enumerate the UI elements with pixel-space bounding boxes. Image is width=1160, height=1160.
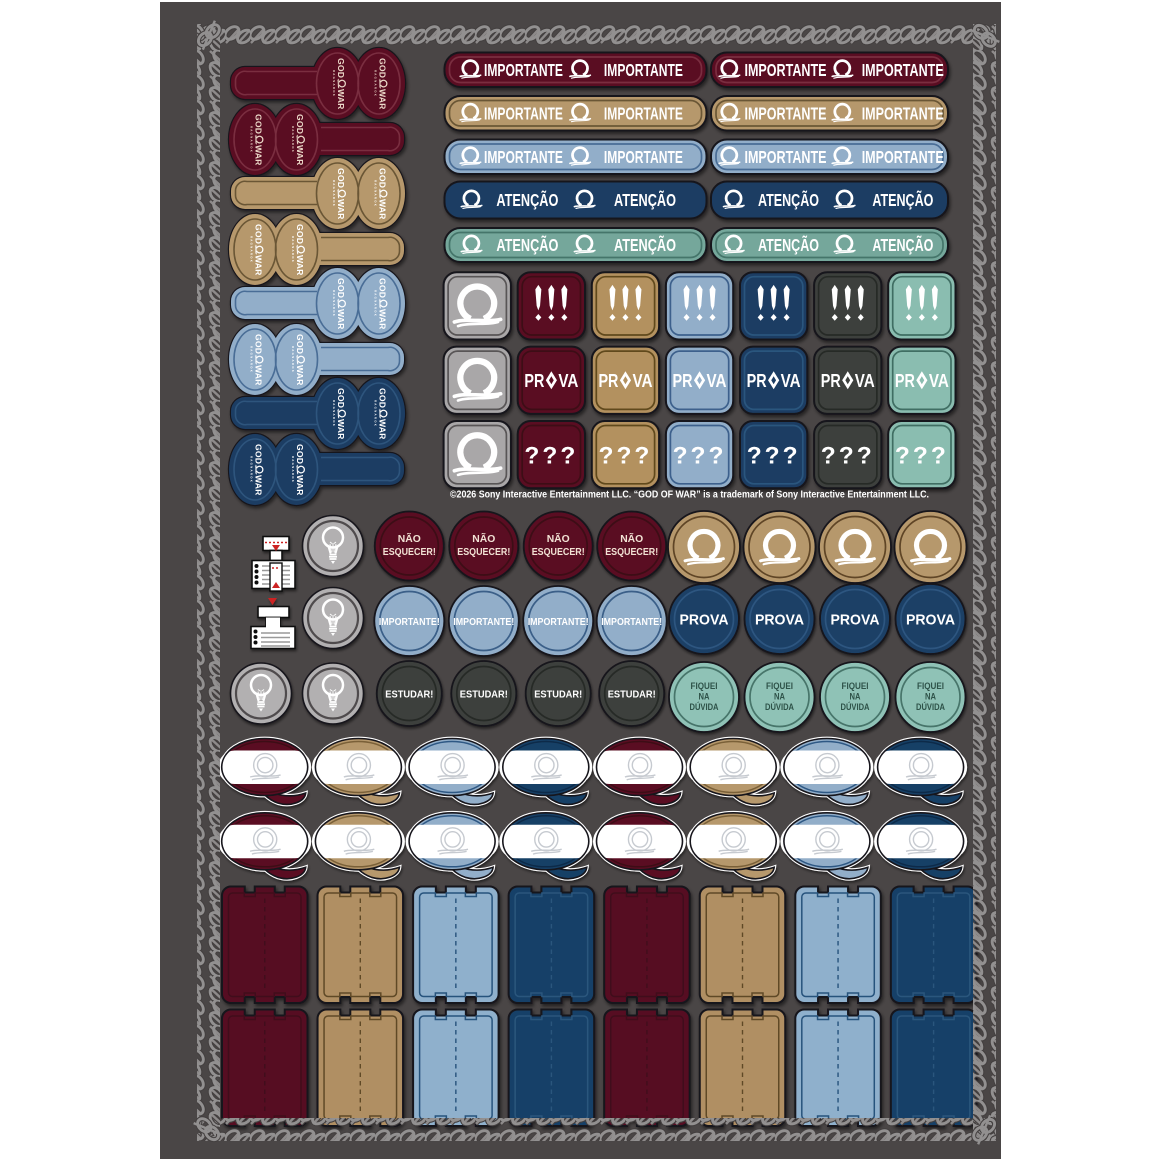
svg-text:ATENÇÃO: ATENÇÃO [614,234,676,255]
svg-text:ATENÇÃO: ATENÇÃO [496,189,558,210]
svg-text:IMPORTANTE!: IMPORTANTE! [528,616,589,628]
svg-text:IMPORTANTE: IMPORTANTE [862,103,944,123]
svg-text:ATENÇÃO: ATENÇÃO [496,234,558,255]
svg-text:VA: VA [781,371,801,391]
svg-text:PROVA: PROVA [831,612,880,629]
svg-text:ATENÇÃO: ATENÇÃO [614,189,676,210]
svg-text:ESQUECER!: ESQUECER! [532,546,585,558]
svg-text:PR: PR [895,371,915,391]
svg-text:???: ??? [895,443,949,470]
svg-text:DÚVIDA: DÚVIDA [841,701,870,712]
svg-text:IMPORTANTE: IMPORTANTE [484,103,563,123]
svg-text:NÃO: NÃO [620,532,643,545]
svg-text:IMPORTANTE: IMPORTANTE [484,60,563,80]
svg-text:NA: NA [699,692,710,702]
svg-text:???: ??? [598,443,652,470]
svg-text:IMPORTANTE: IMPORTANTE [604,103,683,123]
svg-text:FIQUEI: FIQUEI [917,681,944,691]
svg-text:ESQUECER!: ESQUECER! [605,546,658,558]
svg-text:ESTUDAR!: ESTUDAR! [385,689,433,701]
svg-text:ATENÇÃO: ATENÇÃO [872,189,933,210]
svg-text:FIQUEI: FIQUEI [691,681,718,691]
svg-text:IMPORTANTE: IMPORTANTE [604,60,683,80]
svg-text:DÚVIDA: DÚVIDA [765,701,794,712]
svg-text:???: ??? [821,443,875,470]
svg-text:VA: VA [929,371,949,391]
svg-text:PR: PR [598,371,618,391]
svg-text:NA: NA [850,692,861,702]
svg-text:ATENÇÃO: ATENÇÃO [758,234,819,255]
svg-text:ATENÇÃO: ATENÇÃO [758,189,819,210]
svg-text:NA: NA [774,692,785,702]
svg-text:PR: PR [673,371,693,391]
svg-text:VA: VA [855,371,875,391]
svg-text:IMPORTANTE!: IMPORTANTE! [601,616,662,628]
svg-text:FIQUEI: FIQUEI [842,681,869,691]
svg-text:IMPORTANTE: IMPORTANTE [604,147,683,167]
svg-text:DÚVIDA: DÚVIDA [690,701,719,712]
svg-text:NA: NA [925,692,936,702]
svg-text:PR: PR [821,371,841,391]
svg-text:DÚVIDA: DÚVIDA [916,701,945,712]
svg-text:IMPORTANTE: IMPORTANTE [862,147,944,167]
svg-text:PROVA: PROVA [906,612,955,629]
svg-text:???: ??? [524,443,578,470]
svg-text:NÃO: NÃO [398,532,421,545]
svg-text:VA: VA [558,371,578,391]
svg-text:IMPORTANTE: IMPORTANTE [745,60,827,80]
svg-text:PR: PR [747,371,767,391]
svg-text:FIQUEI: FIQUEI [766,681,793,691]
svg-text:IMPORTANTE: IMPORTANTE [484,147,563,167]
svg-text:ESTUDAR!: ESTUDAR! [534,689,582,701]
svg-text:ESTUDAR!: ESTUDAR! [608,689,656,701]
svg-text:IMPORTANTE: IMPORTANTE [745,147,827,167]
svg-text:ATENÇÃO: ATENÇÃO [872,234,933,255]
svg-text:IMPORTANTE: IMPORTANTE [745,103,827,123]
svg-text:ESQUECER!: ESQUECER! [383,546,436,558]
svg-text:???: ??? [747,443,801,470]
svg-text:VA: VA [632,371,652,391]
svg-text:PR: PR [524,371,544,391]
svg-text:NÃO: NÃO [547,532,570,545]
svg-text:VA: VA [707,371,727,391]
svg-text:???: ??? [673,443,727,470]
svg-text:PROVA: PROVA [755,612,804,629]
svg-text:IMPORTANTE!: IMPORTANTE! [453,616,514,628]
svg-text:ESQUECER!: ESQUECER! [457,546,510,558]
svg-text:©2026 Sony Interactive Enterta: ©2026 Sony Interactive Entertainment LLC… [450,490,929,501]
svg-text:PROVA: PROVA [680,612,729,629]
svg-text:ESTUDAR!: ESTUDAR! [460,689,508,701]
svg-text:IMPORTANTE!: IMPORTANTE! [379,616,440,628]
svg-text:NÃO: NÃO [472,532,495,545]
svg-text:IMPORTANTE: IMPORTANTE [862,60,944,80]
